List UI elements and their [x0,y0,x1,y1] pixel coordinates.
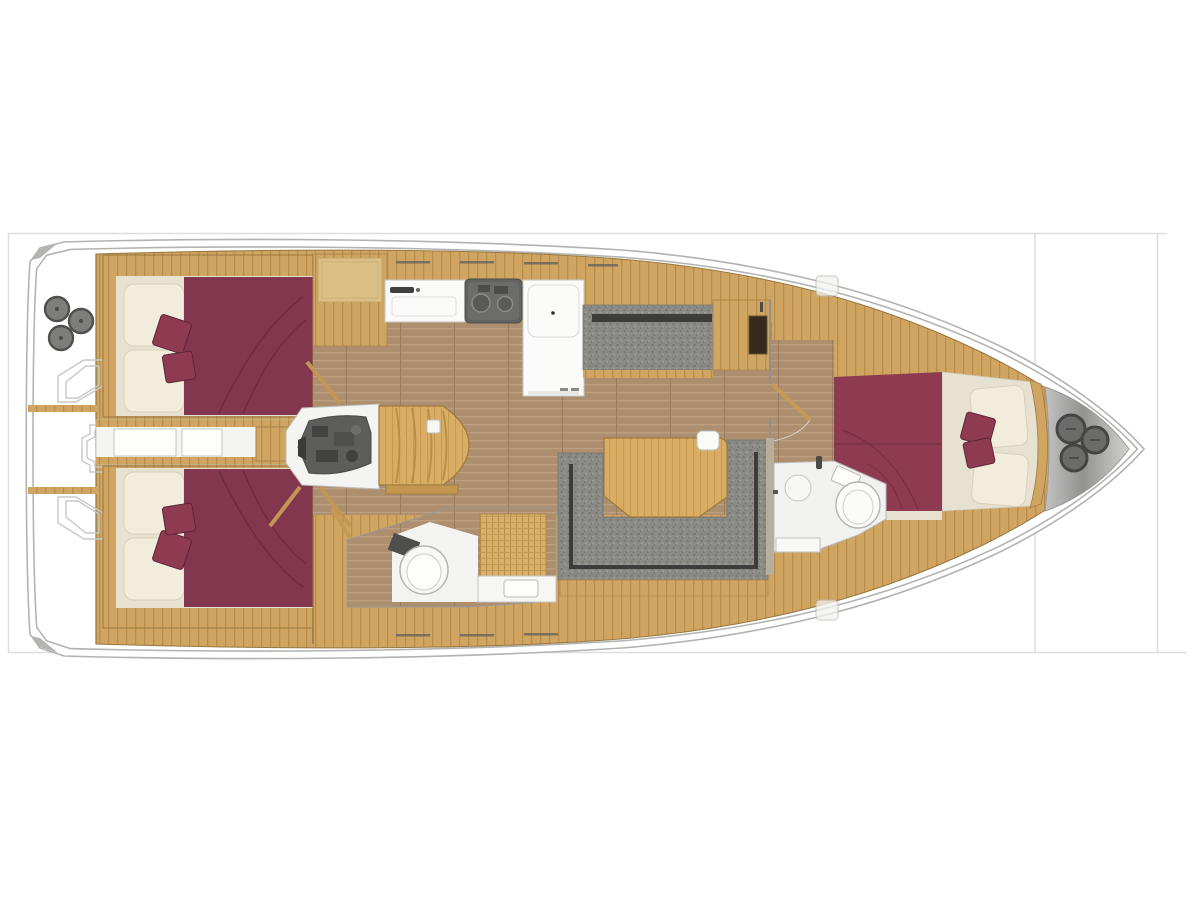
salon-settee [583,305,713,378]
handrail-mark [460,261,494,264]
burner-icon [498,297,513,312]
handrail-mark [396,261,430,264]
sliding-hatch [318,258,382,302]
salon-shelf [713,300,770,370]
bottom-step [386,485,458,494]
handrail-mark [588,264,618,267]
handrail-mark [460,634,494,637]
toilet-seat [407,554,441,590]
aft-cabin-starboard [103,466,313,628]
handrail-mark [524,633,558,636]
sink-basin [504,580,538,597]
salon-table [604,431,727,517]
engine-room [286,404,379,489]
dinette-plinth [560,580,768,596]
throw-pillow [162,503,196,535]
settee-back-piping [592,314,712,322]
cockpit-sill-bottom [28,487,105,494]
deck-hatch-small [816,600,838,620]
aft-passage [96,420,313,464]
settee-plinth [583,370,713,378]
handrail-mark [396,634,430,637]
door-handle [816,456,822,469]
fwd-cabin-floor [772,340,834,466]
throw-pillow [963,437,996,468]
engine-detail [298,436,306,460]
burner-icon [472,294,490,312]
engine-detail [312,426,328,437]
faucet-knob [416,288,420,292]
shower-sill [776,538,820,552]
galley-stove [465,279,522,323]
yacht-floorplan-page [0,0,1200,900]
passage-panel [182,429,222,456]
stove-knob [494,286,508,294]
shower-grate [480,514,546,576]
mattress [184,469,313,607]
engine-detail [346,450,358,462]
passage-trim [96,420,313,427]
locker-slot [749,316,767,354]
fridge-latch [551,311,555,315]
mattress [184,277,313,415]
galley-cabinet [313,254,387,346]
fridge-shadow [528,391,579,395]
galley-sink-unit [385,280,465,322]
engine-detail [334,432,354,446]
latch-mark [760,302,763,312]
sink-basin [785,475,811,501]
berth-base-strip [886,511,942,520]
passage-panel [114,429,176,456]
faucet-icon [390,287,414,293]
throw-pillow [162,351,196,383]
step-pad [427,420,440,433]
engine-detail [351,425,361,435]
fridge-body [523,280,584,396]
table-tray [697,431,719,450]
aft-cabin-port [103,255,313,417]
stove-knob [478,285,490,292]
head-wall [766,438,774,575]
stairs-body [379,406,469,485]
floorplan-svg [0,0,1200,900]
fitting-mark [773,490,778,494]
deck-hatch-small [816,276,838,296]
handrail-mark [524,262,558,265]
engine-detail [316,450,338,462]
cockpit-sill-top [28,405,105,412]
galley-fridge-unit [523,280,584,396]
